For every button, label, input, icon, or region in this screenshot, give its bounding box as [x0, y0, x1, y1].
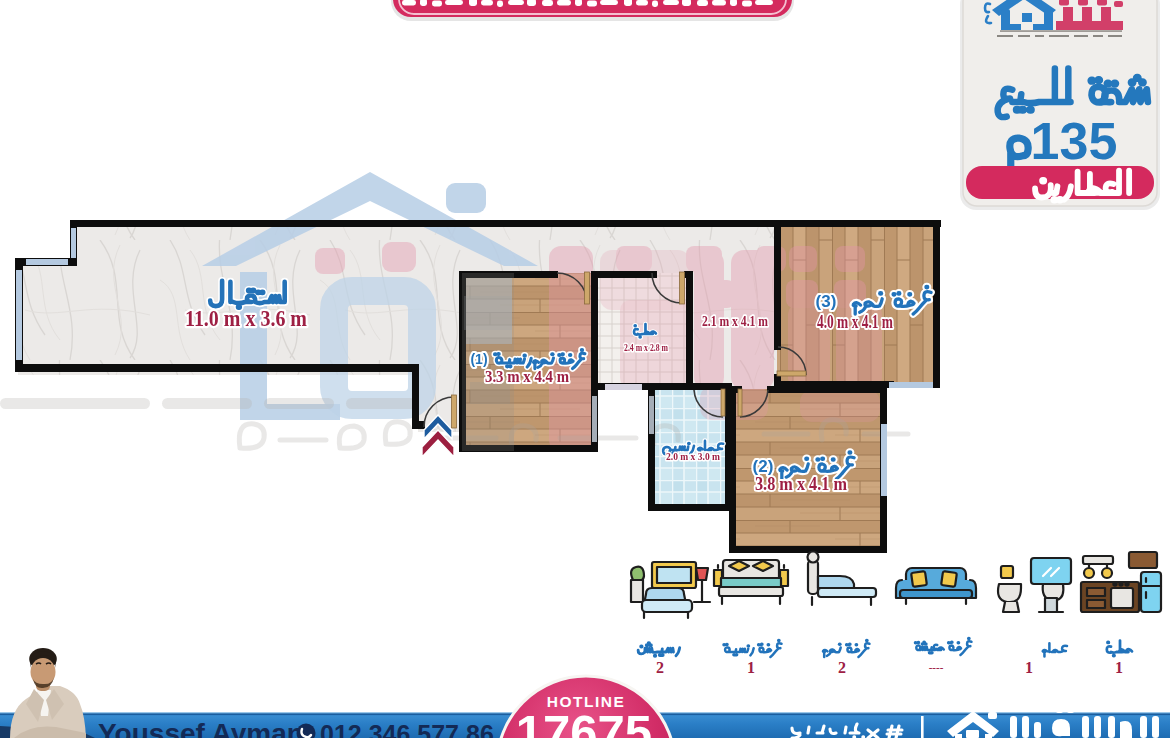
svg-text:(1): (1) — [470, 351, 487, 367]
svg-text:2: 2 — [838, 659, 846, 676]
svg-text:1: 1 — [1115, 659, 1123, 676]
svg-text:11.0 m x 3.6 m: 11.0 m x 3.6 m — [185, 306, 307, 331]
svg-text:4.0 m x 4.1 m: 4.0 m x 4.1 m — [817, 312, 893, 332]
svg-text:1: 1 — [747, 659, 755, 676]
svg-text:----: ---- — [929, 661, 944, 673]
svg-text:012 346 577 86: 012 346 577 86 — [320, 720, 494, 738]
svg-text:2.4 m x 2.8 m: 2.4 m x 2.8 m — [624, 342, 669, 353]
svg-text:1: 1 — [1025, 659, 1033, 676]
svg-text:2: 2 — [656, 659, 664, 676]
svg-text:3.3 m x 4.4 m: 3.3 m x 4.4 m — [485, 367, 569, 386]
svg-text:Youssef Ayman: Youssef Ayman — [98, 718, 304, 738]
svg-text:2.0 m x 3.0 m: 2.0 m x 3.0 m — [666, 450, 720, 462]
svg-text:135: 135 — [1031, 112, 1118, 170]
svg-text:(3): (3) — [816, 292, 837, 311]
svg-text:17675: 17675 — [516, 705, 652, 738]
svg-text:3.8 m x 4.1 m: 3.8 m x 4.1 m — [755, 474, 847, 494]
svg-text:2.1 m x 4.1 m: 2.1 m x 4.1 m — [702, 313, 768, 329]
